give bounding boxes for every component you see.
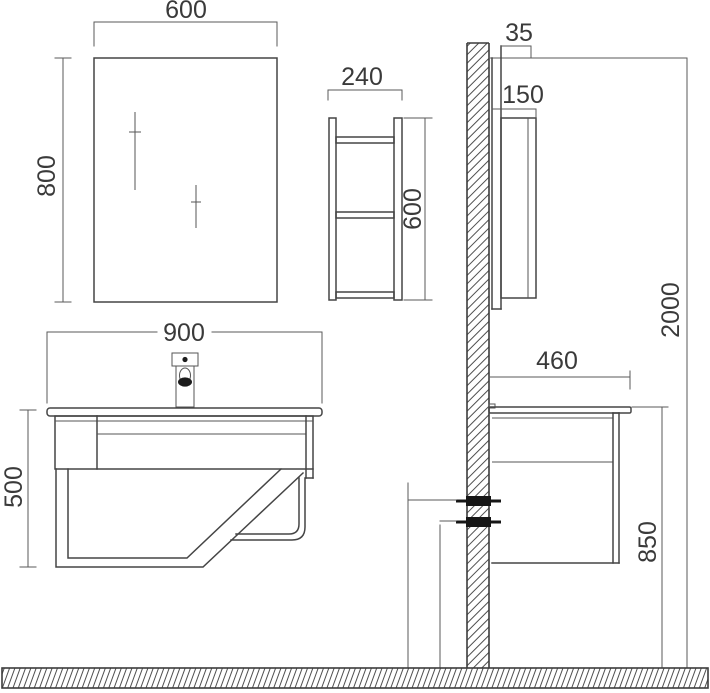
- dim-shelf-depth: 150: [492, 81, 544, 118]
- vanity-installation-drawing: 600 800 240 600: [0, 0, 710, 693]
- dim-mirror-width: 600: [94, 0, 277, 46]
- vanity-side-view: [489, 404, 631, 563]
- shelf-board-top: [336, 137, 394, 143]
- floor-section: [2, 668, 708, 688]
- mounting-bracket-lower: [456, 517, 501, 527]
- dim-label-mirror-depth: 35: [505, 19, 533, 47]
- drawing-canvas: 600 800 240 600: [0, 0, 710, 693]
- frame-inner-tube: [68, 469, 281, 558]
- dim-counter-height: 850: [632, 407, 668, 668]
- dim-counter-depth: 460: [489, 347, 630, 389]
- dim-mirror-height: 800: [33, 58, 71, 302]
- mirror-side-view: [492, 46, 501, 309]
- dim-label-vanity-height: 500: [0, 466, 28, 508]
- vanity-front-view: [47, 353, 322, 567]
- dim-label-wall-height: 2000: [657, 282, 685, 338]
- shelf-board-bottom: [336, 292, 394, 298]
- floor-hatching: [2, 668, 708, 688]
- mirror-reflection-mark: [191, 185, 201, 228]
- bracket-reference-lines: [408, 483, 456, 668]
- dim-label-counter-depth: 460: [536, 347, 578, 375]
- shelf-front-view: [329, 118, 402, 300]
- dim-label-vanity-width: 900: [163, 319, 205, 347]
- support-frame: [56, 469, 303, 567]
- faucet-outlet: [178, 377, 192, 386]
- dim-mirror-depth: 35: [501, 19, 533, 58]
- dim-label-shelf-width: 240: [341, 63, 383, 91]
- dim-vanity-height: 500: [0, 410, 36, 567]
- dim-label-mirror-height: 800: [33, 155, 61, 197]
- dim-shelf-width: 240: [328, 63, 402, 100]
- wall-hatching: [467, 43, 489, 668]
- dim-label-counter-height: 850: [634, 521, 662, 563]
- dim-label-shelf-depth: 150: [502, 81, 544, 109]
- wall-section: [408, 43, 501, 668]
- dim-shelf-height: 600: [399, 118, 432, 300]
- dim-label-mirror-width: 600: [165, 0, 207, 24]
- shelf-side-view: [501, 118, 536, 298]
- mirror-outline: [94, 58, 277, 302]
- cabinet-body: [55, 416, 313, 469]
- mirror-front-view: [94, 58, 277, 302]
- faucet: [172, 353, 198, 407]
- shelf-left-panel: [329, 118, 336, 300]
- faucet-aerator-dot: [182, 357, 187, 362]
- countertop-basin: [47, 408, 322, 416]
- shelf-board-middle: [336, 212, 394, 218]
- counter-side-slab: [489, 407, 631, 413]
- mirror-reflection-mark: [129, 112, 141, 190]
- dim-label-shelf-height: 600: [399, 188, 427, 230]
- mounting-bracket-upper: [456, 496, 501, 506]
